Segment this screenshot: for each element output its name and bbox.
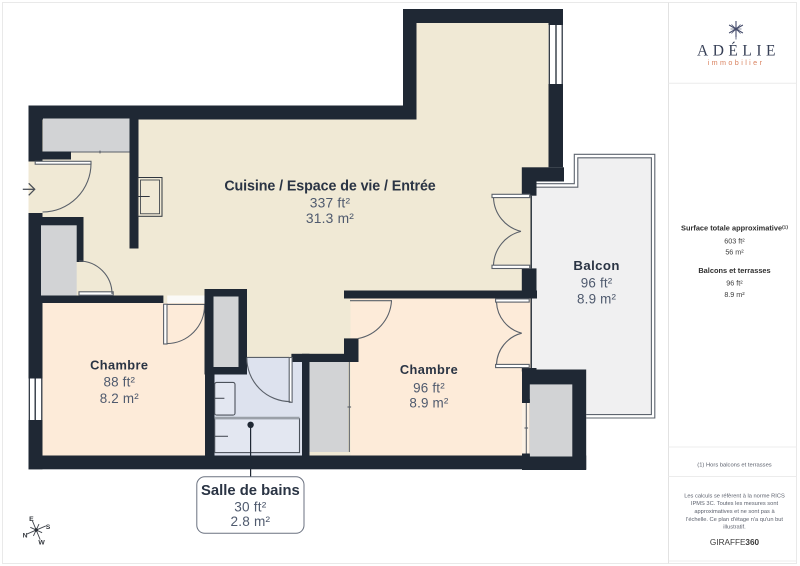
svg-text:Surface totale approximative(1: Surface totale approximative(1): [681, 224, 788, 233]
svg-text:8.9 m²: 8.9 m²: [577, 292, 616, 307]
svg-text:W: W: [38, 539, 45, 546]
svg-text:Chambre: Chambre: [400, 362, 458, 377]
svg-text:8.2 m²: 8.2 m²: [100, 391, 139, 406]
svg-text:30 ft²: 30 ft²: [234, 500, 266, 515]
svg-text:Chambre: Chambre: [90, 358, 148, 373]
svg-text:Cuisine / Espace de vie / Entr: Cuisine / Espace de vie / Entrée: [224, 179, 435, 195]
svg-text:Les calculs se réfèrent à la n: Les calculs se réfèrent à la norme RICS: [684, 493, 785, 499]
svg-text:8.9 m²: 8.9 m²: [409, 396, 448, 411]
svg-text:(1) Hors balcons et terrasses: (1) Hors balcons et terrasses: [697, 462, 772, 468]
svg-text:88 ft²: 88 ft²: [103, 375, 135, 390]
svg-text:Balcon: Balcon: [573, 258, 619, 273]
svg-text:IPMS 3C. Toutes les mesures so: IPMS 3C. Toutes les mesures sont: [691, 501, 779, 507]
svg-text:603 ft²: 603 ft²: [724, 237, 745, 246]
svg-text:approximatives et ne sont pas: approximatives et ne sont pas à: [694, 509, 775, 515]
svg-text:337 ft²: 337 ft²: [310, 196, 351, 211]
svg-text:E: E: [29, 516, 34, 523]
svg-text:31.3 m²: 31.3 m²: [306, 211, 354, 226]
svg-text:Salle de bains: Salle de bains: [201, 483, 300, 499]
svg-text:2.8 m²: 2.8 m²: [231, 514, 271, 529]
svg-text:illustratif.: illustratif.: [723, 525, 746, 531]
svg-text:96 ft²: 96 ft²: [581, 276, 613, 291]
svg-text:96 ft²: 96 ft²: [413, 381, 445, 396]
svg-text:S: S: [46, 524, 51, 531]
svg-text:56 m²: 56 m²: [725, 248, 744, 257]
svg-text:Balcons et terrasses: Balcons et terrasses: [698, 266, 770, 275]
svg-text:N: N: [23, 532, 28, 539]
svg-text:l'échelle. Ce plan d'étage n'a: l'échelle. Ce plan d'étage n'a qu'un but: [686, 517, 783, 523]
svg-text:GIRAFFE360: GIRAFFE360: [710, 538, 760, 547]
svg-text:8.9 m²: 8.9 m²: [724, 290, 745, 299]
svg-text:immobilier: immobilier: [708, 58, 765, 67]
svg-text:96 ft²: 96 ft²: [726, 279, 743, 288]
